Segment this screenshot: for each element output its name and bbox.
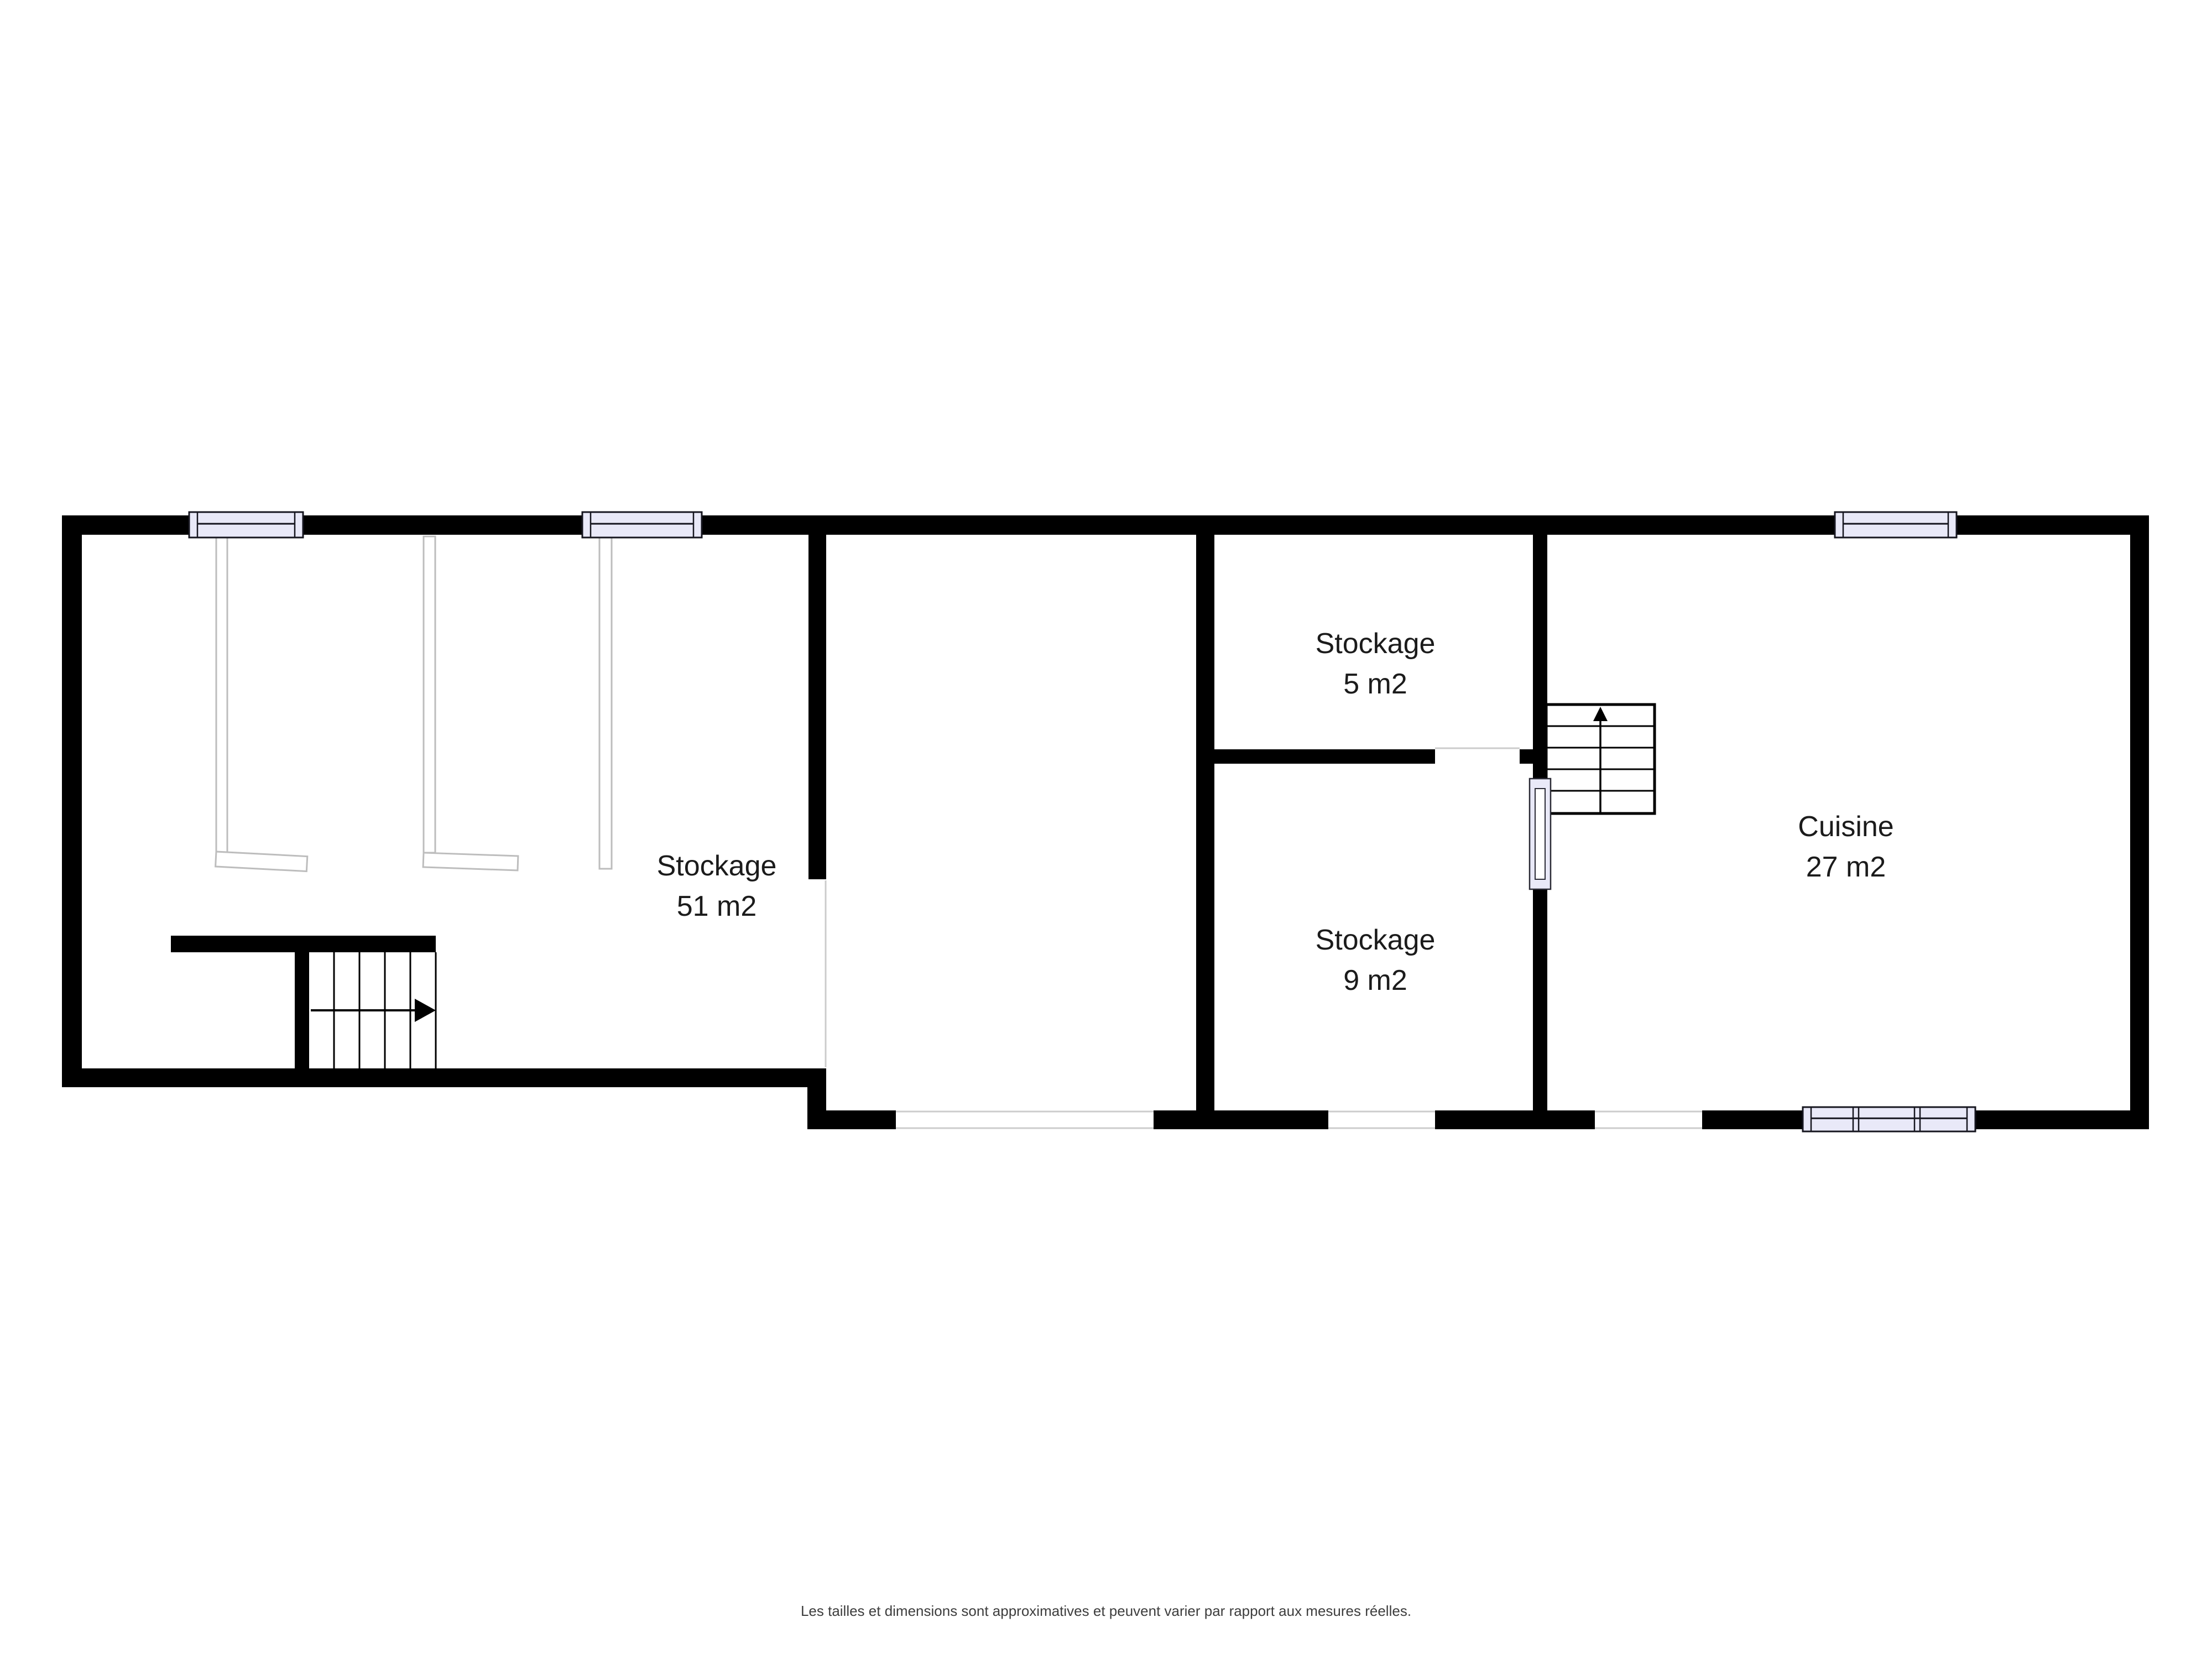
room-name: Cuisine [1798,807,1893,847]
room-label-cuisine: Cuisine 27 m2 [1798,807,1893,888]
wall-right [2130,515,2149,1129]
room-label-stockage-51: Stockage 51 m2 [657,846,777,927]
wall-bottom-left [62,1068,826,1087]
room-name: Stockage [657,846,777,886]
stairs-direction-arrowhead [415,999,436,1022]
room-name: Stockage [1316,624,1436,664]
wall-bottom-right-1 [1702,1110,1804,1129]
room-label-stockage-9: Stockage 9 m2 [1316,920,1436,1001]
rack-outline-2-bar [424,536,435,853]
room-area: 27 m2 [1798,847,1893,888]
disclaimer-text: Les tailles et dimensions sont approxima… [801,1603,1411,1620]
wall-stair-side-wall [295,936,309,1068]
top-window-1 [189,512,303,538]
wall-stockage5-bottom-stub [1520,749,1533,764]
floor-plan: Stockage 51 m2 Stockage 5 m2 Stockage 9 … [0,0,2212,1659]
wall-divider-middle [1196,515,1214,1129]
rack-outline-3-bar [599,536,612,869]
bottom-window [1803,1107,1975,1131]
room-area: 51 m2 [657,886,777,927]
rack-outline-1-bar [216,536,227,853]
room-label-stockage-5: Stockage 5 m2 [1316,624,1436,705]
wall-bottom-mid-1 [807,1110,896,1129]
wall-bottom-mid-2 [1154,1110,1328,1129]
top-window-2 [582,512,702,538]
wall-bottom-mid-3 [1435,1110,1595,1129]
interior-door-leaf [1535,789,1545,879]
wall-left [62,515,82,1087]
room-area: 5 m2 [1316,664,1436,705]
room-name: Stockage [1316,920,1436,961]
rack-outline-1-foot [216,852,307,872]
wall-stockage5-bottom [1214,749,1435,764]
wall-divider-stockage51 [808,515,826,879]
top-window-3 [1835,512,1957,538]
rack-outline-2-foot [423,853,518,870]
room-area: 9 m2 [1316,961,1436,1001]
wall-bottom-right-2 [1974,1110,2149,1129]
